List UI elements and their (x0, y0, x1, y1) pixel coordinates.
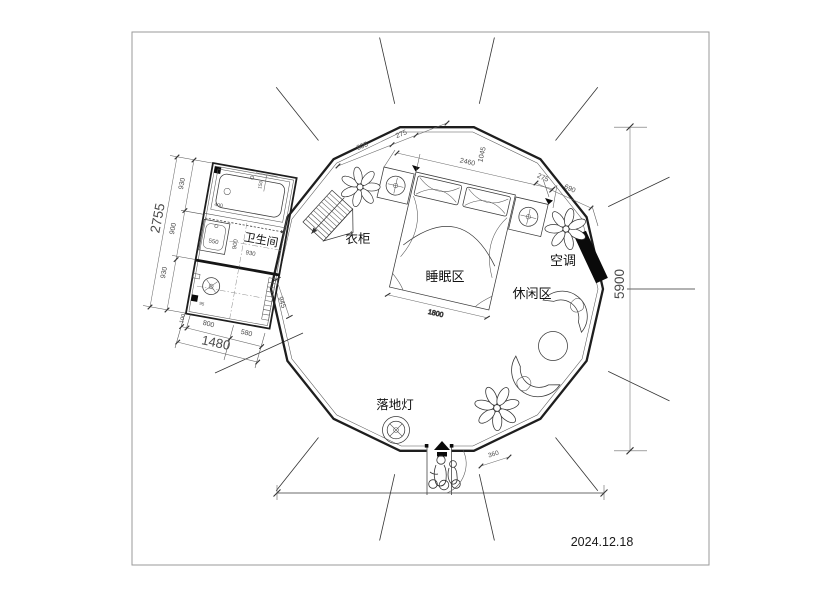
entry-door (425, 441, 466, 495)
dim-275-right: 275 (536, 173, 550, 184)
dim-bath-bottom-0: 100 (179, 314, 187, 324)
floor-lamp-label: 落地灯 (376, 398, 414, 412)
plant-topleft (340, 166, 380, 207)
dim-1045: 1045 (477, 146, 487, 163)
cushion (568, 296, 587, 315)
dim-bath-bottom-total: 1480 (200, 332, 231, 353)
dim-tub-w: 400 (214, 202, 224, 209)
dim-bath-left-total: 2755 (147, 202, 167, 234)
paper-holder (193, 273, 200, 279)
sleeping-area-label: 睡眠区 (425, 269, 464, 284)
dim-door-360: 360 (479, 450, 512, 469)
leisure-area-label: 休闲区 (512, 286, 551, 301)
floorplan-canvas: 360 5900 (0, 0, 837, 592)
wall-sconce-icon (412, 165, 420, 172)
dim-sink: 550 (208, 238, 220, 246)
bathroom-label: 卫生间 (243, 230, 279, 250)
dim-945: 945 (276, 296, 286, 309)
dim-bath-bottom: 100 800 580 1480 (175, 313, 265, 368)
sink (199, 219, 230, 254)
dim-bed-width: 1800 (427, 309, 444, 319)
dim-2460: 2460 (459, 157, 476, 167)
column-icon (191, 294, 199, 302)
armchair (502, 356, 560, 407)
floorplan-drawing: 360 5900 (0, 0, 837, 592)
dim-corner: 95 (199, 301, 205, 307)
dim-tub-s: 150 (257, 180, 264, 189)
wardrobe-label: 衣柜 (345, 231, 370, 246)
room-walls (271, 127, 603, 451)
dim-mid-w2: 930 (245, 250, 257, 258)
dim-mid-w: 900 (232, 238, 240, 250)
bed: 1800 睡眠区 (383, 171, 518, 329)
leisure-area: 休闲区 (502, 281, 598, 407)
blanket-arc (403, 217, 501, 266)
dim-bath-left-2: 930 (160, 266, 169, 279)
shower-drain-icon (201, 276, 221, 296)
dim-bath-bottom-1: 800 (202, 320, 215, 330)
dim-690: 690 (563, 184, 577, 195)
dim-275-left: 275 (395, 129, 409, 140)
dim-total-height: 5900 (612, 269, 627, 299)
dim-360: 360 (487, 450, 500, 460)
cushion (514, 374, 533, 394)
nightstand-right (509, 197, 549, 237)
dim-bath-left-0: 930 (178, 177, 187, 190)
side-table (539, 332, 568, 361)
person-figure (429, 456, 461, 490)
dim-bath-bottom-2: 580 (240, 329, 253, 339)
dim-bath-left-1: 900 (169, 222, 178, 235)
ground-line (274, 485, 608, 500)
plant-bottom (469, 380, 525, 436)
drawing-date: 2024.12.18 (571, 535, 634, 549)
nightstand-left (377, 167, 414, 204)
wall-sconce-icon (545, 198, 553, 205)
ac-label: 空调 (550, 253, 576, 268)
